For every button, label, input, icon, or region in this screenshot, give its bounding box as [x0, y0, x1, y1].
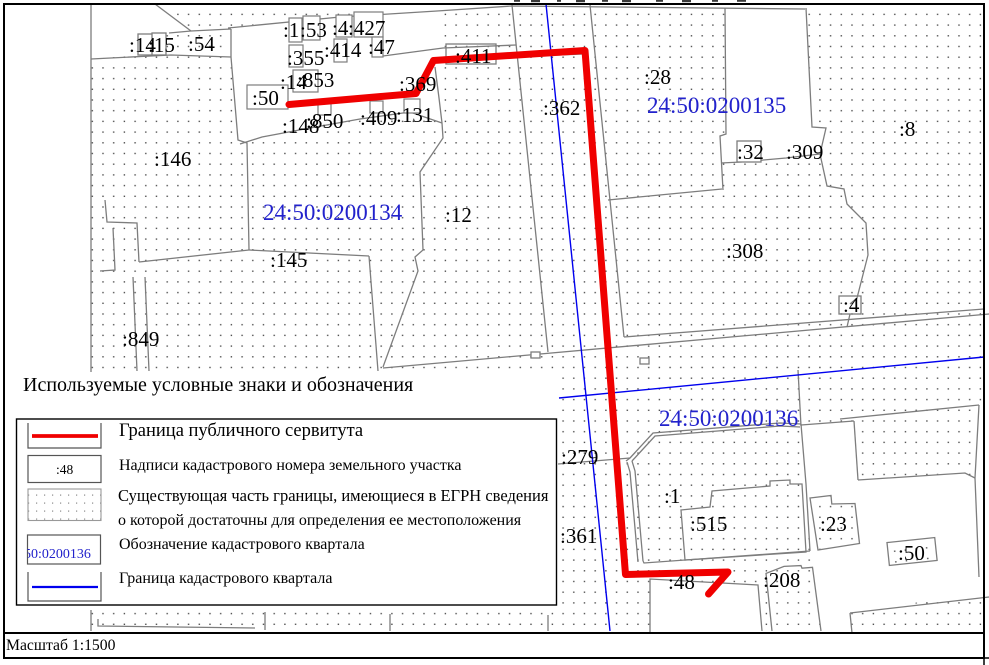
svg-text::411: :411 [455, 44, 492, 68]
svg-text::50: :50 [898, 541, 925, 565]
svg-text::23: :23 [820, 512, 847, 536]
svg-text:о которой достаточны для опред: о которой достаточны для определения ее … [118, 512, 522, 529]
svg-text::850: :850 [306, 109, 343, 133]
svg-text:Граница публичного сервитута: Граница публичного сервитута [119, 421, 363, 441]
svg-text::8: :8 [899, 117, 915, 141]
svg-text::414: :414 [324, 38, 362, 62]
svg-text::309: :309 [786, 140, 823, 164]
svg-text::48: :48 [668, 570, 695, 594]
svg-text::47: :47 [368, 35, 395, 59]
svg-text::28: :28 [644, 65, 671, 89]
svg-text::853: :853 [297, 68, 334, 92]
svg-text::362: :362 [543, 96, 580, 120]
svg-text::54: :54 [188, 32, 215, 56]
svg-text::15: :15 [148, 33, 175, 57]
svg-text::4: :4 [332, 16, 349, 40]
svg-text::355: :355 [287, 46, 324, 70]
svg-text::145: :145 [270, 248, 307, 272]
svg-text:Обозначение кадастрового кварт: Обозначение кадастрового квартала [119, 536, 365, 553]
svg-text::1: :1 [283, 18, 299, 42]
svg-text:50:0200136: 50:0200136 [24, 547, 91, 562]
svg-text::48: :48 [56, 462, 74, 477]
svg-text::53: :53 [300, 18, 327, 42]
svg-text::279: :279 [561, 445, 598, 469]
svg-text::32: :32 [737, 140, 764, 164]
svg-text::361: :361 [560, 524, 597, 548]
svg-text::369: :369 [399, 72, 436, 96]
svg-text::208: :208 [763, 568, 800, 592]
svg-text:24:50:0200135: 24:50:0200135 [647, 93, 786, 118]
svg-text:24:50:0200134: 24:50:0200134 [263, 200, 403, 225]
svg-text::12: :12 [445, 203, 472, 227]
svg-text::1: :1 [664, 484, 680, 508]
svg-text::849: :849 [122, 327, 159, 351]
svg-text::409: :409 [360, 106, 397, 130]
svg-text:Надписи кадастрового номера зе: Надписи кадастрового номера земельного у… [119, 457, 461, 474]
svg-text::131: :131 [396, 103, 433, 127]
svg-text:Граница кадастрового квартала: Граница кадастрового квартала [119, 570, 332, 587]
svg-text:Существующая часть границы, им: Существующая часть границы, имеющиеся в … [118, 486, 549, 505]
svg-text::308: :308 [726, 239, 763, 263]
svg-text::515: :515 [690, 512, 727, 536]
svg-text::146: :146 [154, 147, 191, 171]
svg-text:Масштаб 1:1500: Масштаб 1:1500 [6, 637, 116, 654]
svg-text::50: :50 [252, 86, 279, 110]
svg-text:24:50:0200136: 24:50:0200136 [659, 406, 798, 431]
svg-text:Используемые условные знаки и: Используемые условные знаки и обозначени… [23, 374, 413, 396]
svg-text::4: :4 [843, 293, 860, 317]
